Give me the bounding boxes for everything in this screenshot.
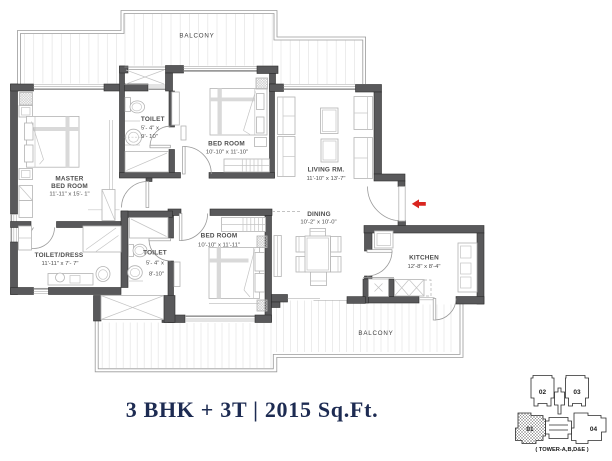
svg-text:LIVING RM.: LIVING RM. [308, 167, 345, 174]
svg-text:BALCONY: BALCONY [358, 330, 393, 337]
svg-text:11'-10" x 13'-7": 11'-10" x 13'-7" [306, 176, 345, 182]
svg-text:( TOWER-A,B,D&E ): ( TOWER-A,B,D&E ) [535, 447, 588, 453]
svg-text:10'-10" x 11'-11": 10'-10" x 11'-11" [198, 243, 240, 249]
svg-text:TOILET/DRESS: TOILET/DRESS [35, 252, 84, 259]
svg-text:3 BHK + 3T | 2015 Sq.Ft.: 3 BHK + 3T | 2015 Sq.Ft. [126, 397, 379, 422]
svg-text:5'- 4" x: 5'- 4" x [141, 126, 159, 132]
svg-text:10'-10" x 11'-10": 10'-10" x 11'-10" [206, 150, 248, 156]
svg-text:02: 02 [539, 389, 547, 396]
svg-text:01: 01 [526, 426, 534, 433]
svg-text:TOILET: TOILET [141, 116, 165, 123]
svg-text:MASTER: MASTER [55, 176, 83, 183]
svg-text:DINING: DINING [307, 211, 331, 218]
svg-text:10'-2" x 10'-0": 10'-2" x 10'-0" [300, 220, 336, 226]
svg-text:12'-8" x 8'-4": 12'-8" x 8'-4" [408, 264, 441, 270]
svg-text:04: 04 [590, 426, 598, 433]
svg-text:BED ROOM: BED ROOM [201, 233, 238, 240]
svg-text:BED ROOM: BED ROOM [51, 183, 88, 190]
svg-text:11'-11" x 15'- 1": 11'-11" x 15'- 1" [49, 192, 89, 198]
svg-text:BALCONY: BALCONY [179, 33, 214, 40]
svg-text:5'- 4" x: 5'- 4" x [146, 261, 164, 267]
svg-text:KITCHEN: KITCHEN [409, 255, 439, 262]
svg-text:9'- 10": 9'- 10" [141, 134, 158, 140]
svg-text:11'-11" x 7'- 7": 11'-11" x 7'- 7" [42, 261, 79, 267]
svg-text:03: 03 [573, 389, 581, 396]
svg-text:8'-10": 8'-10" [149, 272, 164, 278]
svg-text:BED ROOM: BED ROOM [208, 141, 245, 148]
svg-text:TOILET: TOILET [143, 250, 167, 257]
